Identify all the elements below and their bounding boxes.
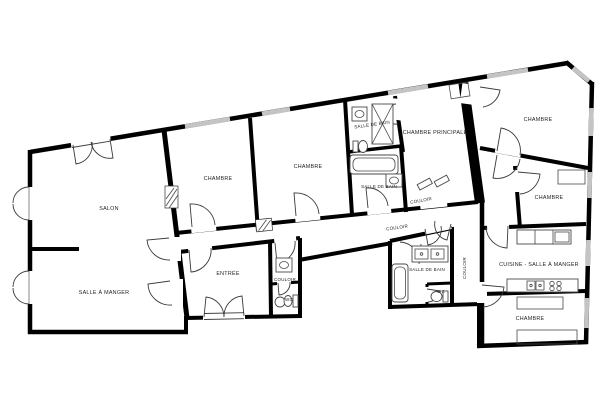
room-label-couloir-2: COULOIR xyxy=(386,223,409,231)
room-label-couloir-3: COULOIR xyxy=(274,277,296,282)
wall-openings xyxy=(23,83,523,322)
room-label-couloir-4: COULOIR xyxy=(462,257,467,279)
room-label-salle-a-manger: SALLE À MANGER xyxy=(79,289,130,296)
toilet xyxy=(353,141,368,153)
hatch-pillar-2 xyxy=(255,218,272,232)
floor-plan-page: SALON SALLE À MANGER CHAMBRE CHAMBRE SAL… xyxy=(0,0,600,414)
window-bevel xyxy=(573,68,589,81)
room-label-chambre-5: CHAMBRE xyxy=(516,316,545,322)
sink xyxy=(275,297,285,307)
kitchen-counter-top xyxy=(517,230,571,244)
room-label-salle-de-bain-2: SALLE DE BAIN xyxy=(361,184,397,189)
bathtub xyxy=(350,155,398,174)
hatch-pillar-1 xyxy=(165,186,178,208)
room-label-wc-2: WC xyxy=(437,289,445,294)
room-label-cuisine: CUISINE - SALLE À MANGER xyxy=(499,261,579,268)
floor-plan-canvas: SALON SALLE À MANGER CHAMBRE CHAMBRE SAL… xyxy=(0,0,600,414)
window-right-4 xyxy=(586,298,587,328)
room-label-chambre-2: CHAMBRE xyxy=(294,164,323,170)
room-label-entree: ENTRÉE xyxy=(216,270,240,277)
kitchen-counter-sink-stove xyxy=(507,279,578,292)
double-sink xyxy=(412,246,448,262)
room-label-chambre-1: CHAMBRE xyxy=(204,176,233,182)
room-label-salle-de-bain-3: SALLE DE BAIN xyxy=(409,267,445,272)
sink xyxy=(276,258,292,272)
window-top-1 xyxy=(185,119,230,126)
room-label-wc-1: WC xyxy=(285,297,293,302)
sink xyxy=(352,107,367,121)
window-top-2 xyxy=(262,109,290,114)
exterior-walls xyxy=(28,62,592,348)
room-label-chambre-principale: CHAMBRE PRINCIPALE xyxy=(403,130,468,136)
bathtub xyxy=(392,264,408,302)
room-label-salon: SALON xyxy=(99,206,119,212)
room-label-chambre-3: CHAMBRE xyxy=(524,117,553,123)
window-right-3 xyxy=(588,240,589,266)
window-right-2 xyxy=(589,172,590,198)
closet xyxy=(558,170,585,184)
closet xyxy=(517,297,563,309)
room-label-chambre-4: CHAMBRE xyxy=(535,195,564,201)
window-right-1 xyxy=(591,108,592,136)
